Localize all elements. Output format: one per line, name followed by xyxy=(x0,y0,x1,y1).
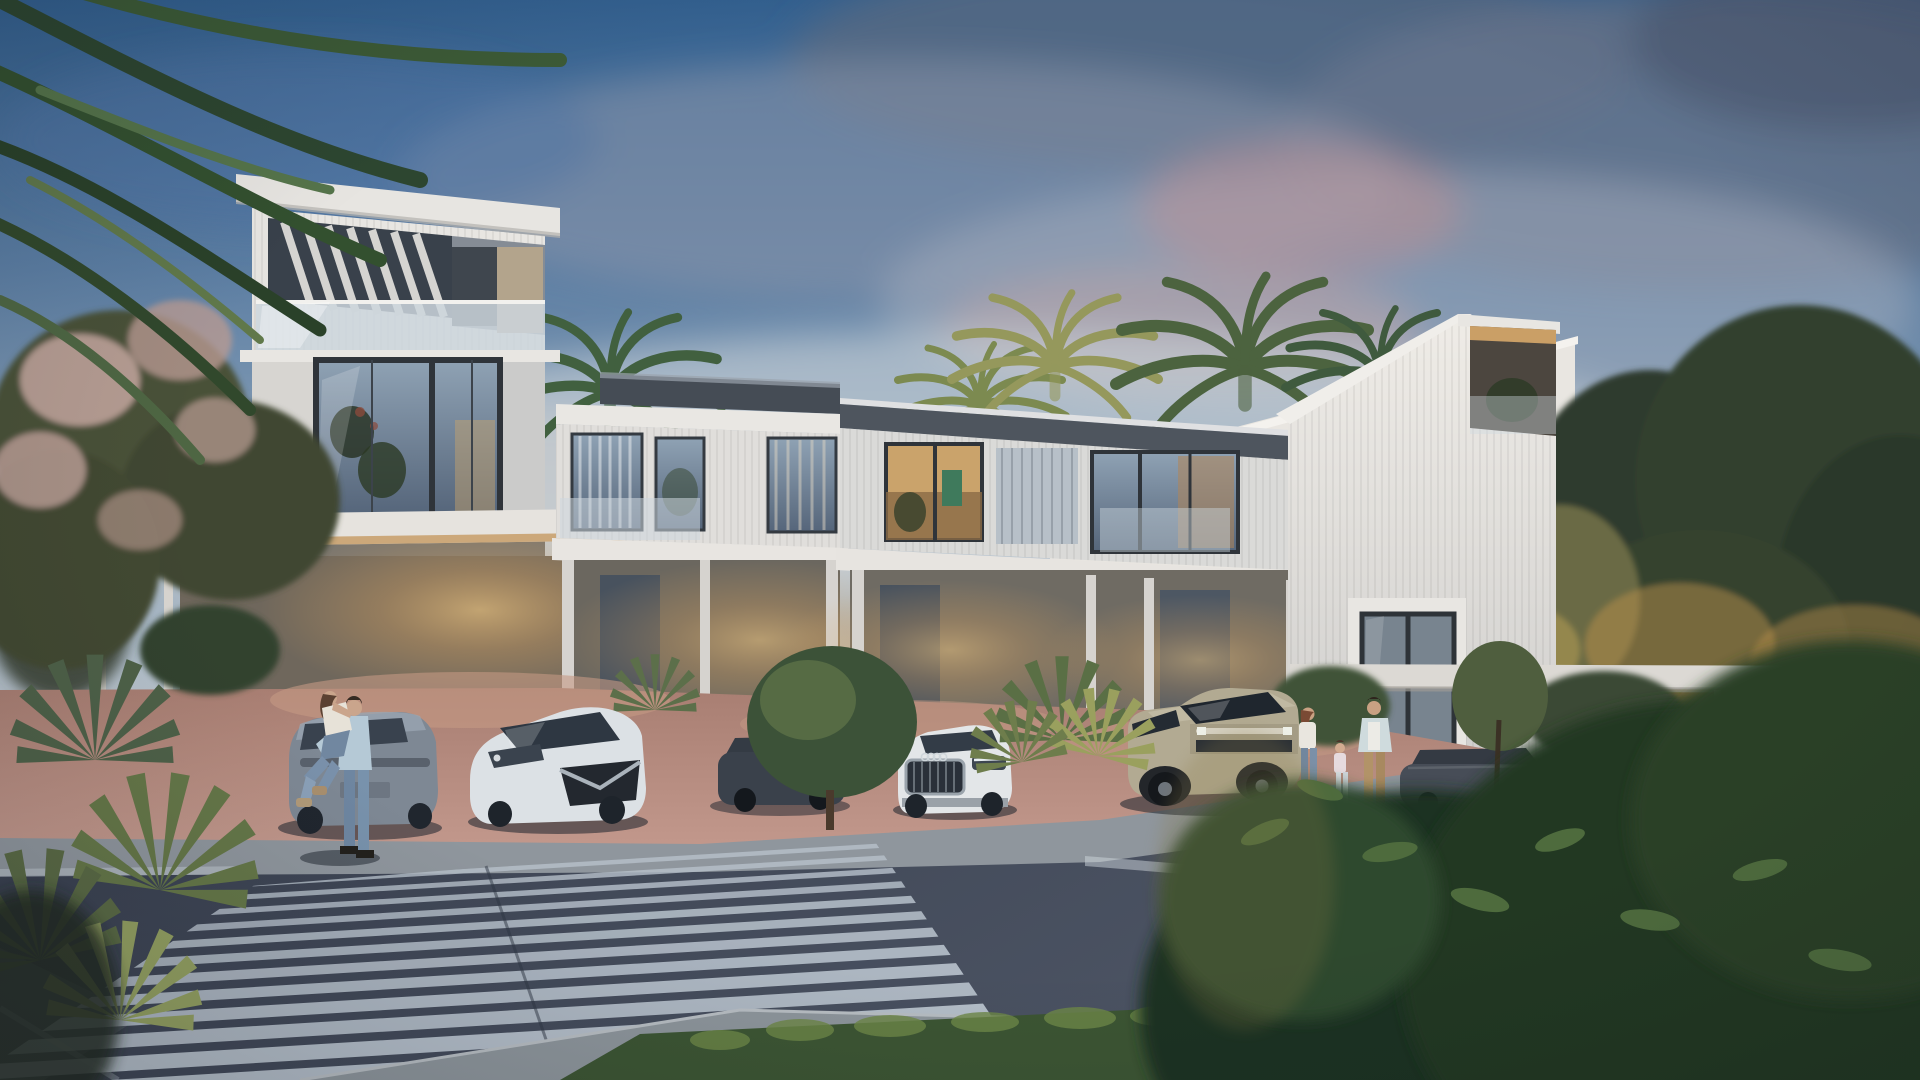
rendered-scene xyxy=(0,0,1920,1080)
vignette-overlay xyxy=(0,0,1920,1080)
scene-canvas xyxy=(0,0,1920,1080)
